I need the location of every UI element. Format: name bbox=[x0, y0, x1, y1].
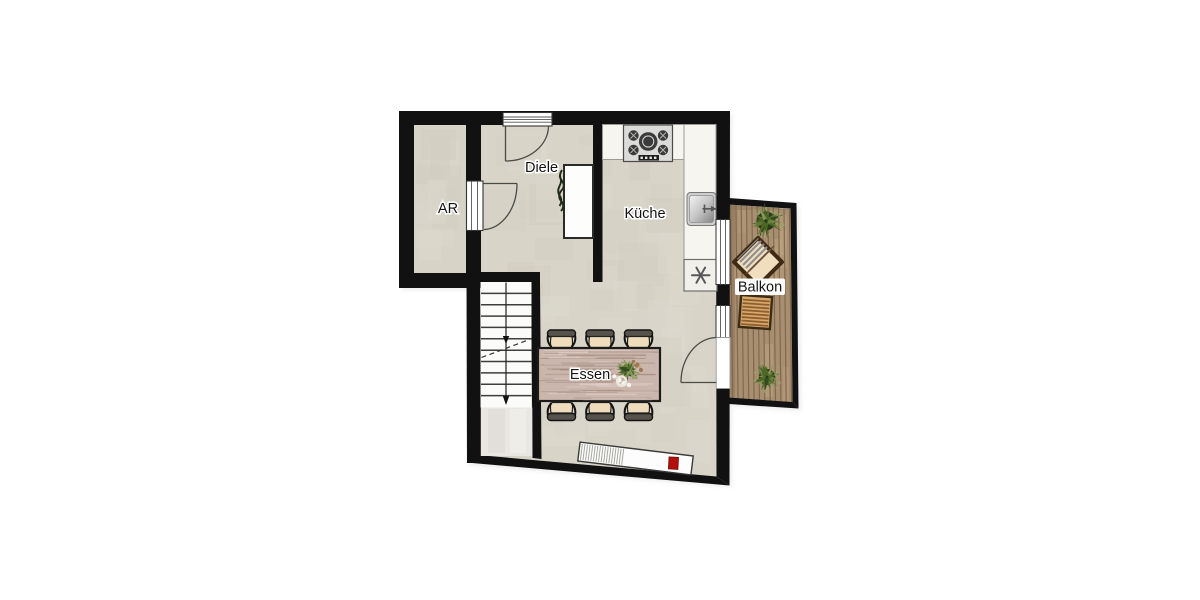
svg-text:Balkon: Balkon bbox=[738, 280, 782, 296]
svg-text:Diele: Diele bbox=[525, 160, 558, 176]
svg-text:AR: AR bbox=[438, 201, 458, 217]
svg-text:Küche: Küche bbox=[624, 206, 665, 222]
svg-text:Essen: Essen bbox=[570, 367, 610, 383]
